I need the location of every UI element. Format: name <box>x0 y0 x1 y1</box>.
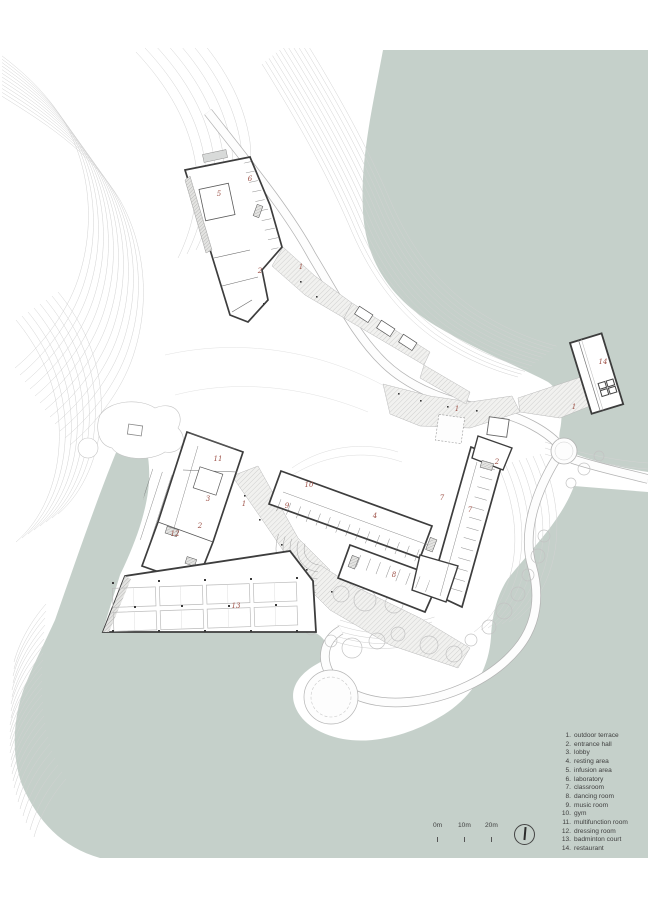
room-number-label: 7 <box>468 506 473 514</box>
legend-item: 11.multifunction room <box>558 819 628 828</box>
legend-item: 2.entrance hall <box>558 741 628 750</box>
scale-label-20m: 20m <box>485 822 498 829</box>
room-number-label: 1 <box>572 403 576 411</box>
site-plan-drawing: 1111222345677891011121314 <box>0 0 650 920</box>
room-number-label: 2 <box>257 267 263 275</box>
room-number-label: 5 <box>217 190 222 198</box>
room-number-label: 10 <box>305 481 314 489</box>
site-plan-page: 1111222345677891011121314 1.outdoor terr… <box>0 0 650 920</box>
legend-item: 4.resting area <box>558 758 628 767</box>
legend-item: 13.badminton court <box>558 836 628 845</box>
room-number-label: 8 <box>392 571 397 579</box>
scale-label-0m: 0m <box>433 822 442 829</box>
legend-item: 12.dressing room <box>558 828 628 837</box>
room-number-label: 1 <box>242 500 246 508</box>
room-number-label: 1 <box>455 405 459 413</box>
room-number-label: 12 <box>171 530 180 538</box>
scale-tick <box>437 837 438 842</box>
legend-item: 1.outdoor terrace <box>558 732 628 741</box>
legend-item: 5.infusion area <box>558 767 628 776</box>
building-infusion-block <box>185 150 282 322</box>
legend-item: 10.gym <box>558 810 628 819</box>
room-number-label: 14 <box>599 358 608 366</box>
scale-label-10m: 10m <box>458 822 471 829</box>
room-number-label: 4 <box>372 512 377 520</box>
room-number-label: 13 <box>232 602 241 610</box>
legend: 1.outdoor terrace2.entrance hall3.lobby4… <box>558 732 628 854</box>
room-number-label: 11 <box>214 455 223 463</box>
garden-circle <box>304 670 358 724</box>
building-badminton-hall <box>103 551 316 632</box>
scale-tick <box>491 837 492 842</box>
room-number-label: 2 <box>494 458 500 466</box>
legend-item: 3.lobby <box>558 749 628 758</box>
room-number-label: 9 <box>285 502 290 510</box>
legend-item: 7.classroom <box>558 784 628 793</box>
legend-item: 9.music room <box>558 802 628 811</box>
legend-item: 6.laboratory <box>558 776 628 785</box>
legend-item: 8.dancing room <box>558 793 628 802</box>
legend-item: 14.restaurant <box>558 845 628 854</box>
legend-list: 1.outdoor terrace2.entrance hall3.lobby4… <box>558 732 628 854</box>
north-arrow-icon <box>514 824 535 845</box>
room-number-label: 7 <box>440 494 445 502</box>
scale-tick <box>464 837 465 842</box>
room-number-label: 2 <box>197 522 203 530</box>
room-number-label: 6 <box>248 175 253 183</box>
room-number-label: 3 <box>206 495 211 503</box>
room-number-label: 1 <box>299 263 303 271</box>
hillside-clearing <box>78 402 183 459</box>
